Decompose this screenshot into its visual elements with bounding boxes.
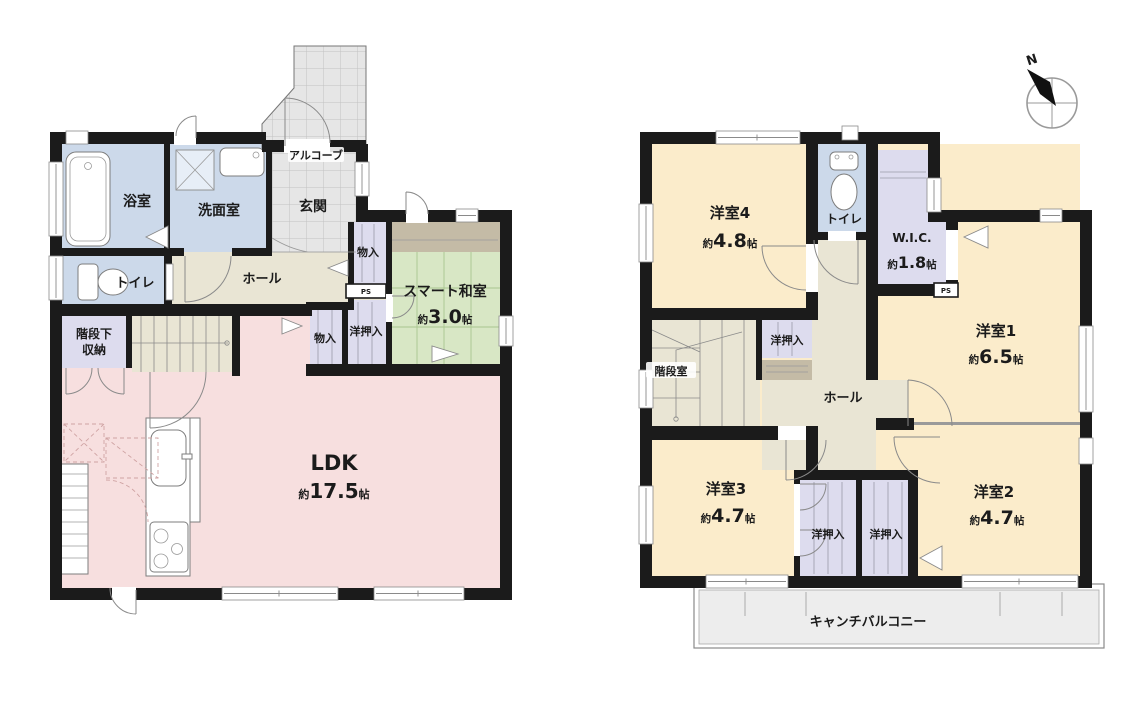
toilet-label-2f: トイレ bbox=[826, 212, 862, 226]
japanese-room-alcove-strip bbox=[390, 222, 500, 252]
bedroom1-label: 洋室1 bbox=[976, 322, 1016, 340]
washroom-label: 洗面室 bbox=[198, 202, 240, 219]
washer-pan bbox=[176, 150, 214, 190]
pipe-space-1f: PS bbox=[346, 284, 386, 298]
floor-2-plan: キャンチバルコニー bbox=[639, 126, 1104, 648]
compass-north-label: N bbox=[1025, 52, 1040, 70]
bathroom-label: 浴室 bbox=[123, 193, 151, 210]
stair-closet-strip bbox=[762, 360, 812, 380]
stairwell-label: 階段室 bbox=[655, 364, 688, 378]
stair-closet-label: 洋押入 bbox=[771, 333, 804, 347]
floor-plan-svg: PS bbox=[0, 0, 1140, 720]
balcony-label: キャンチバルコニー bbox=[810, 615, 927, 630]
storage-lower-label: 物入 bbox=[314, 331, 336, 345]
under-stair-storage-area bbox=[62, 316, 126, 368]
under-stair-storage-label-2: 収納 bbox=[82, 342, 106, 357]
closet-label-1f: 洋押入 bbox=[350, 324, 383, 338]
ldk-label: LDK bbox=[310, 451, 358, 475]
svg-text:PS: PS bbox=[941, 287, 951, 295]
alcove-label: アルコーブ bbox=[289, 148, 343, 162]
bathtub bbox=[66, 152, 110, 246]
toilet-label-1f: トイレ bbox=[115, 276, 154, 291]
svg-text:PS: PS bbox=[361, 288, 371, 296]
hall-label-2f: ホール bbox=[823, 391, 862, 406]
closet-right-label: 洋押入 bbox=[870, 527, 903, 541]
pipe-space-2f: PS bbox=[934, 283, 958, 297]
washbasin bbox=[220, 148, 264, 176]
bedroom4-label: 洋室4 bbox=[710, 204, 750, 222]
floor-plan-image: PS bbox=[0, 0, 1140, 720]
entrance-label: 玄関 bbox=[299, 198, 327, 215]
bedroom3-label: 洋室3 bbox=[706, 480, 746, 498]
closet-left-label: 洋押入 bbox=[812, 527, 845, 541]
balcony: キャンチバルコニー bbox=[694, 584, 1104, 648]
under-stair-storage-label-1: 階段下 bbox=[76, 326, 112, 341]
storage-upper-label: 物入 bbox=[357, 245, 379, 259]
louver-storage bbox=[60, 464, 88, 574]
bedroom2-label: 洋室2 bbox=[974, 483, 1014, 501]
stairs-area bbox=[132, 316, 232, 372]
floor-1-plan: PS bbox=[49, 46, 513, 614]
hall-left-arm bbox=[762, 380, 812, 470]
room1-room2-divider bbox=[914, 422, 1080, 425]
toilet-fixture-2f bbox=[830, 152, 858, 210]
alcove-porch bbox=[262, 46, 366, 148]
hall-label-1f: ホール bbox=[242, 272, 281, 287]
compass-icon: N bbox=[1025, 52, 1077, 128]
wic-label: W.I.C. bbox=[892, 231, 931, 245]
japanese-room-label: スマート和室 bbox=[403, 283, 487, 300]
